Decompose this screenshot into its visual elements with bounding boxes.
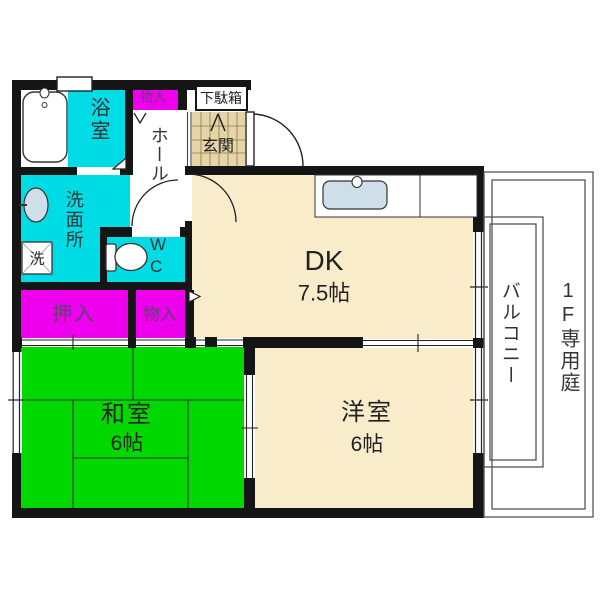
storage-top-door-mark (134, 113, 146, 123)
dk-size: 7.5帖 (298, 280, 351, 305)
washbasin (24, 188, 48, 222)
storage-top-label: 物入 (140, 91, 166, 106)
dk-label: DK (305, 245, 344, 277)
entrance-door-leaf (246, 112, 254, 166)
washer-label: 洗 (29, 250, 44, 267)
japanese-room-size: 6帖 (111, 432, 144, 456)
closet-label: 押入 (52, 304, 96, 327)
shoe-cabinet-label: 下駄箱 (200, 90, 242, 106)
kitchen-faucet (352, 177, 362, 188)
wc-door-swing (132, 180, 178, 226)
wall-dk-western (243, 337, 363, 348)
western-room-floor (255, 348, 473, 508)
bath-window (57, 77, 92, 91)
japanese-room-label: 和室 (101, 401, 153, 429)
western-room-label: 洋室 (341, 399, 393, 427)
hall-label: ホール (148, 126, 169, 183)
floor-plan: 浴室 物入 下駄箱 玄関 ホール 洗面所 洗 W C 押入 物入 DK 7.5帖… (0, 0, 600, 600)
wall-dk-top (190, 166, 484, 175)
bathtub-faucet (40, 88, 49, 98)
toilet (106, 244, 147, 272)
entrance-door-swing (254, 114, 303, 166)
wc-label: W C (150, 234, 166, 278)
bathtub-drain (42, 103, 47, 108)
bath-label: 浴室 (86, 97, 109, 143)
garden-label: 1F専用庭 (556, 280, 579, 394)
washroom-label: 洗面所 (63, 190, 84, 250)
storage-label: 物入 (143, 305, 177, 325)
entrance-label: 玄関 (202, 138, 234, 156)
balcony-label: バルコニー (498, 281, 520, 386)
western-room-size: 6帖 (351, 433, 384, 457)
wall-bottom (12, 508, 484, 518)
